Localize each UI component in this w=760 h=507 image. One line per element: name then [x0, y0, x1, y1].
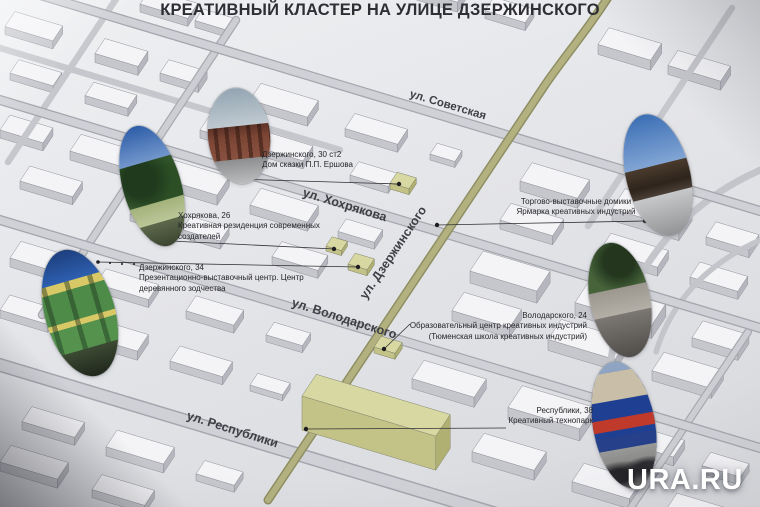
label-address: Хохрякова, 26: [178, 211, 320, 221]
label-text: Креативный технопарк: [455, 416, 593, 426]
label-text: (Тюменская школа креативных индустрий): [405, 332, 587, 342]
ura-ru-watermark: URA.RU: [627, 464, 743, 497]
creative-cluster-map-board: ул. Советская ул. Хохрякова ул. Дзержинс…: [0, 0, 760, 507]
label-dzerzhinskogo-34: Дзержинского, 34 Презентационно-выставоч…: [139, 263, 304, 294]
label-text: Образовательный центр креативных индустр…: [405, 321, 587, 331]
photo-ershov-house: [203, 85, 275, 187]
label-respubliki-38: Республики, 38 Креативный технопарк: [455, 406, 593, 427]
label-text: Презентационно-выставочный центр. Центр: [139, 273, 304, 283]
label-text: Торгово-выставочные домики: [500, 197, 652, 207]
label-khokhryakova-26: Хохрякова, 26 Креативная резиденция совр…: [178, 211, 320, 242]
label-address: Республики, 38: [455, 406, 593, 416]
page-title: КРЕАТИВНЫЙ КЛАСТЕР НА УЛИЦЕ ДЗЕРЖИНСКОГО: [160, 1, 600, 20]
label-ershov-house: Дзержинского, 30 ст2 Дом сказки П.П. Ерш…: [262, 150, 353, 171]
label-volodarskogo-24: Володарского, 24 Образовательный центр к…: [405, 311, 587, 342]
label-text: создателей: [178, 232, 320, 242]
label-address: Дзержинского, 34: [139, 263, 304, 273]
label-text: Креативная резиденция современных: [178, 221, 320, 231]
label-address: Володарского, 24: [405, 311, 587, 321]
label-creative-fair: Торгово-выставочные домики Ярмарка креат…: [500, 197, 652, 218]
label-text: Дом сказки П.П. Ершова: [262, 160, 353, 170]
label-text: Ярмарка креативных индустрий: [500, 207, 652, 217]
label-address: Дзержинского, 30 ст2: [262, 150, 353, 160]
label-text: деревянного зодчества: [139, 284, 304, 294]
